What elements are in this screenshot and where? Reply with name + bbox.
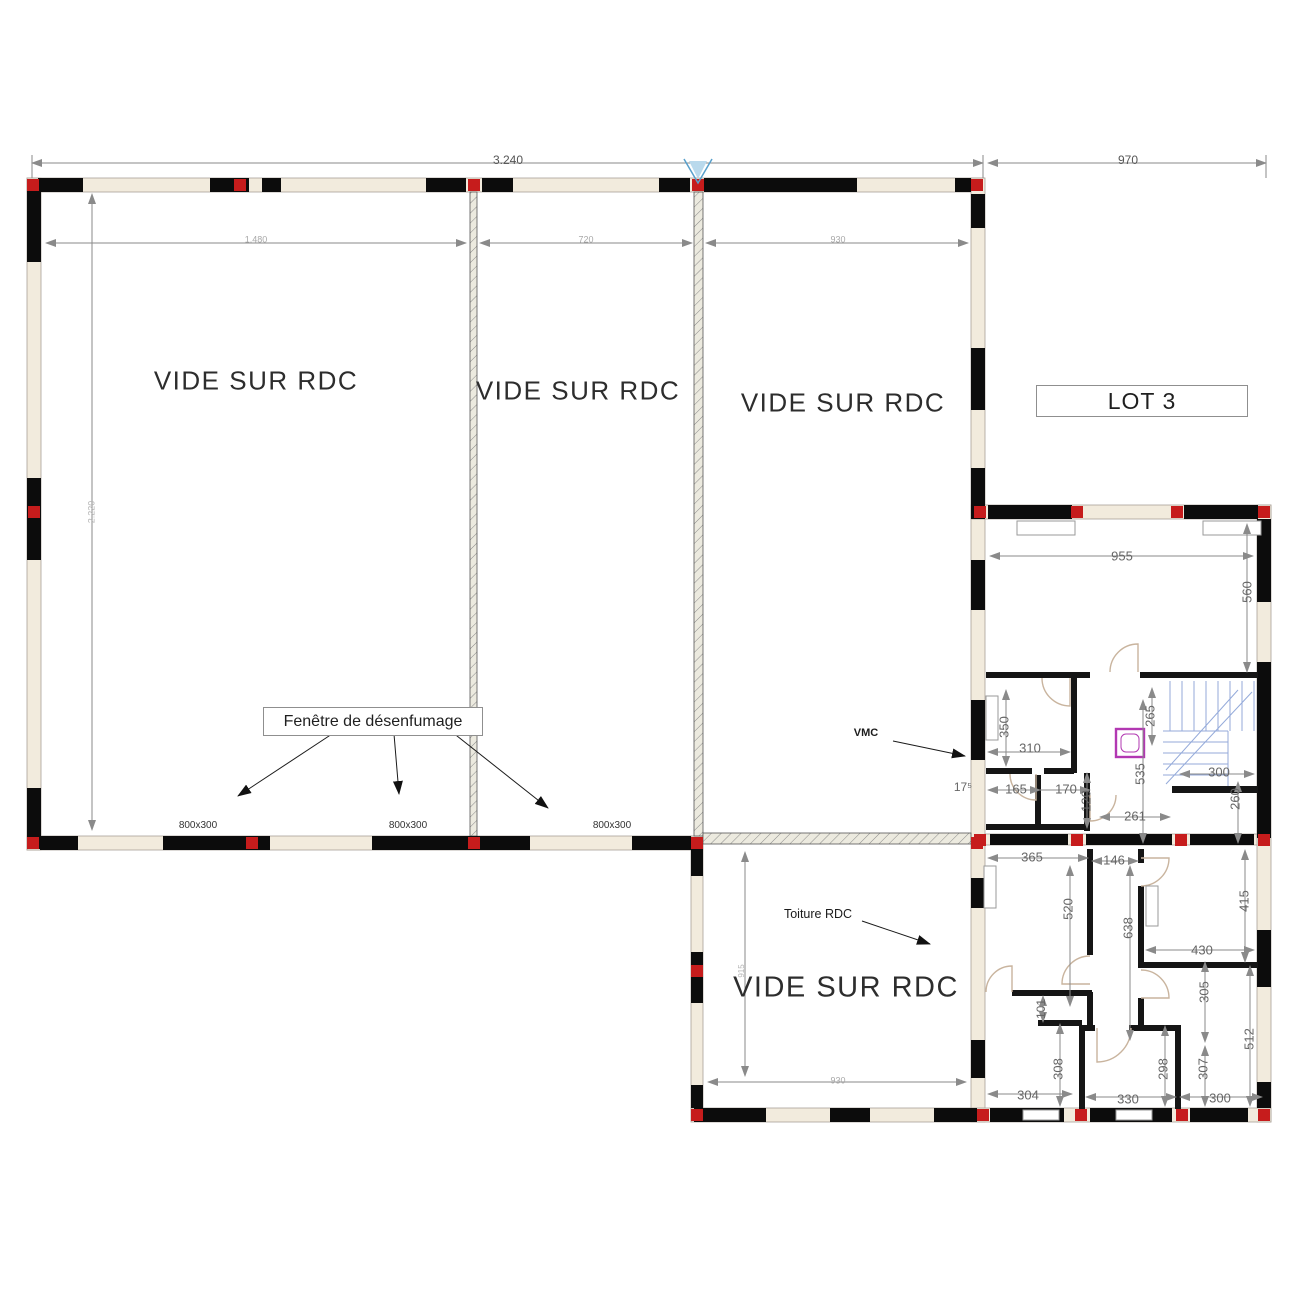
duct-shaft-symbol [1116, 729, 1144, 757]
dim-260: 260 [1229, 788, 1242, 810]
dim-308: 308 [1052, 1058, 1065, 1080]
area-label-vide-bottom: VIDE SUR RDC [733, 972, 959, 1005]
dim-955: 955 [1111, 550, 1133, 563]
dim-415: 415 [1238, 890, 1251, 912]
dim-520: 520 [1062, 898, 1075, 920]
dim-365: 365 [1021, 851, 1043, 864]
dim-300-bottom: 300 [1209, 1092, 1231, 1105]
dim-535: 535 [1134, 763, 1147, 785]
dim-298: 298 [1157, 1058, 1170, 1080]
dim-overall-right: 970 [1118, 154, 1138, 166]
window-size-3: 800x300 [593, 821, 631, 831]
dim-310: 310 [1019, 742, 1041, 755]
dim-bay-1: 1.480 [245, 236, 268, 245]
dim-overall-left: 3.240 [493, 154, 523, 166]
dim-512: 512 [1243, 1028, 1256, 1050]
dim-146: 146 [1103, 854, 1125, 867]
dim-left-height: 2.220 [88, 501, 97, 524]
window-sill-symbols [984, 521, 1261, 1120]
dim-101: 101 [1035, 999, 1047, 1019]
dim-430: 430 [1191, 944, 1213, 957]
dim-305: 305 [1198, 981, 1211, 1003]
area-label-vide-left: VIDE SUR RDC [154, 366, 358, 397]
hatched-walls [470, 192, 971, 844]
wall-infill-bands [27, 178, 1271, 1122]
dim-638: 638 [1122, 917, 1135, 939]
wall-black-segments [27, 178, 1271, 1122]
area-label-vide-middle: VIDE SUR RDC [476, 376, 680, 407]
dim-261: 261 [1124, 810, 1146, 823]
dim-304: 304 [1017, 1089, 1039, 1102]
dim-915-bottom: 915 [738, 964, 746, 977]
window-size-2: 800x300 [389, 821, 427, 831]
dim-17-5: 17⁵ [954, 781, 972, 793]
dim-bay-3: 930 [830, 236, 845, 245]
vmc-callout: VMC [854, 727, 878, 739]
floor-plan-drawing [0, 0, 1300, 1300]
smoke-window-callout-box: Fenêtre de désenfumage [263, 707, 483, 736]
window-size-1: 800x300 [179, 821, 217, 831]
dim-265: 265 [1144, 705, 1157, 727]
floor-plan-page: VIDE SUR RDC VIDE SUR RDC VIDE SUR RDC V… [0, 0, 1300, 1300]
dim-930-bottom: 930 [830, 1077, 845, 1086]
dim-330: 330 [1117, 1093, 1139, 1106]
dimension-lines [32, 155, 1266, 1106]
column-markers [27, 179, 1270, 1121]
dim-bay-2: 720 [578, 236, 593, 245]
dim-300-stairs: 300 [1208, 766, 1230, 779]
dim-560: 560 [1241, 581, 1254, 603]
area-label-vide-right: VIDE SUR RDC [741, 388, 945, 419]
dim-165: 165 [1005, 783, 1027, 796]
lot-label-box: LOT 3 [1036, 385, 1248, 417]
dim-307: 307 [1197, 1058, 1210, 1080]
dim-170: 170 [1055, 783, 1077, 796]
dim-120: 120 [1080, 790, 1093, 812]
dim-350: 350 [998, 716, 1011, 738]
roof-callout: Toiture RDC [784, 907, 852, 921]
